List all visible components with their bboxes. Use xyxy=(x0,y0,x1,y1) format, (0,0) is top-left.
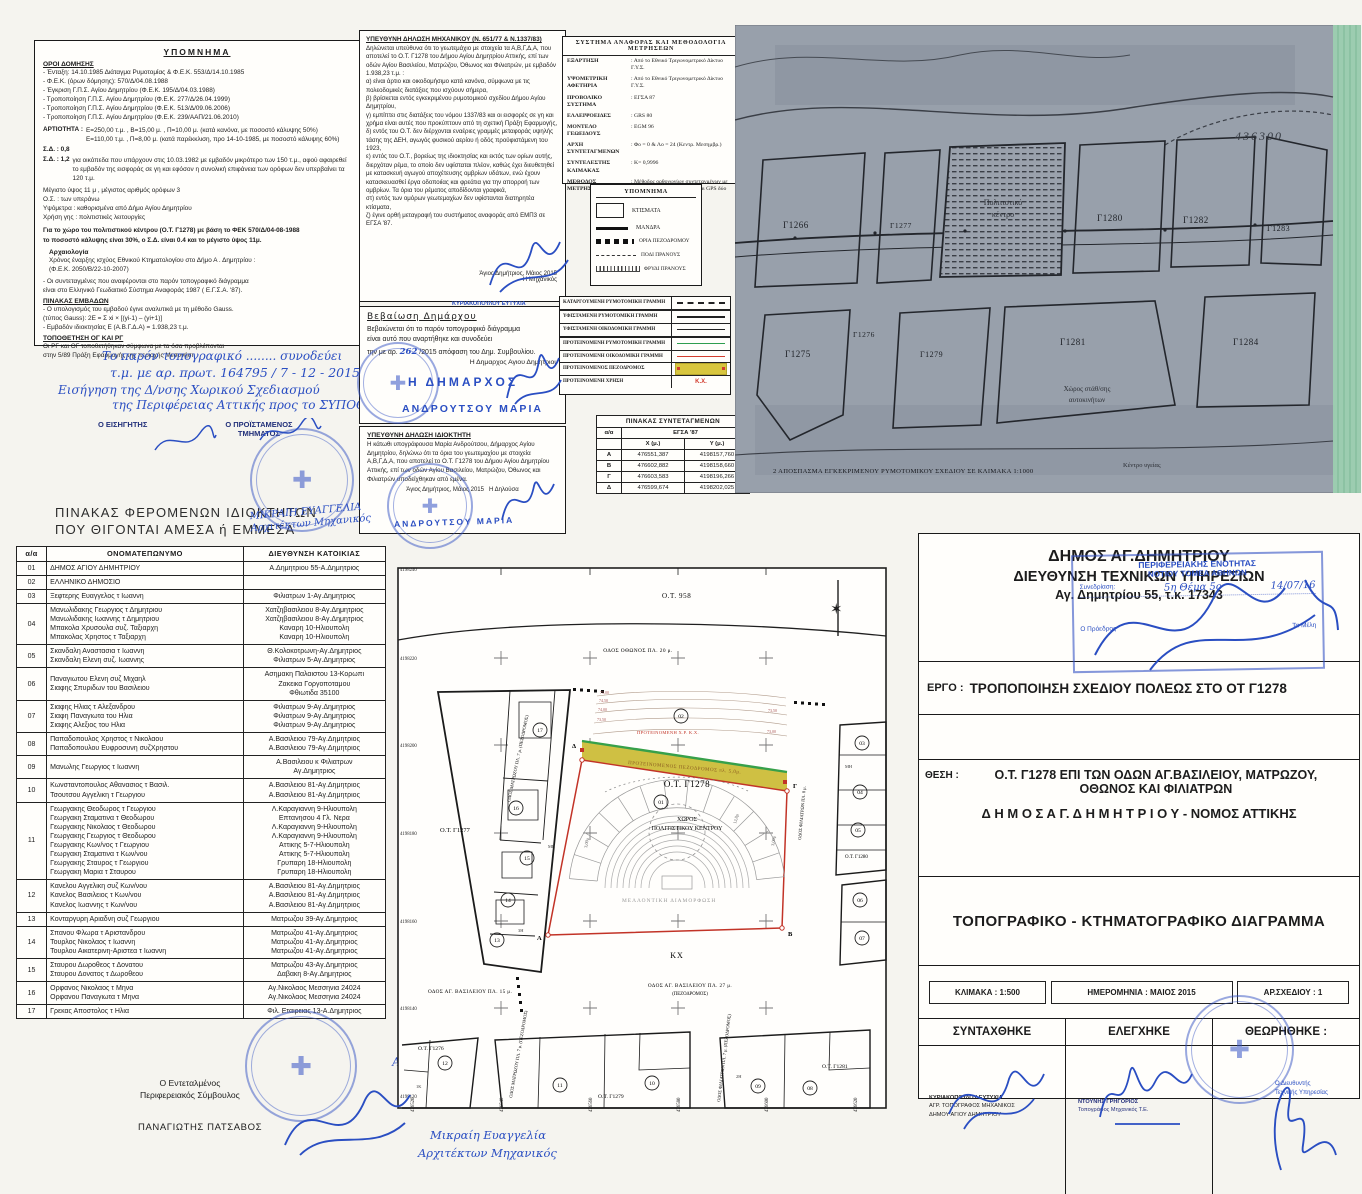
coords-x-value: 476602,882 xyxy=(622,461,685,472)
scale-box: ΚΛΙΜΑΚΑ : 1:500 xyxy=(929,981,1046,1004)
legend-title: ΥΠΟΜΝΗΜΑ xyxy=(596,188,696,198)
sd2-text: για οικόπεδα που υπάρχουν στις 10.03.198… xyxy=(73,156,351,183)
drafted-by-stamp: ΚΥΡΙΑΚΟΠΟΥΛΟΥ ΕΥΤΥΧΙΑ ΑΓΡ. ΤΟΠΟΓΡΑΦΟΣ ΜΗ… xyxy=(929,1094,1015,1119)
corner-gamma: Γ xyxy=(793,783,797,790)
archeology-title: Αρχαιολογία xyxy=(49,249,351,256)
owners-row: 07 Σιαφης Ηλιας τ Αλεξανδρου Σιαφη Παναγ… xyxy=(17,700,386,732)
thesi-value-1: Ο.Τ. Γ1278 ΕΠΙ ΤΩΝ ΟΔΩΝ ΑΓ.ΒΑΣΙΛΕΙΟΥ, ΜΑ… xyxy=(994,768,1317,782)
legend-row-existing-build: ΥΦΙΣΤΑΜΕΝΗ ΟΙΚΟΔΟΜΙΚΗ ΓΡΑΜΜΗ xyxy=(560,324,730,338)
owner-row-addresses: Α.Δημητριου 55-Α.Δημητριος xyxy=(243,561,385,575)
mayor-body-3b: /2015 απόφαση του Δημ. Συμβουλίου. xyxy=(419,349,535,356)
building-terms-box: ΥΠΟΜΝΗΜΑ ΟΡΟΙ ΔΟΜΗΣΗΣ - Ένταξη: 14.10.19… xyxy=(34,40,360,346)
storey-label-1k: 1Κ xyxy=(416,1084,422,1089)
map-grid-number: 436300 xyxy=(1235,129,1283,143)
owner-signer-label: Η Δηλούσα xyxy=(489,487,519,493)
legend-row-proposed-align: ΠΡΟΤΕΙΝΟΜΕΝΗ ΡΥΜΟΤΟΜΙΚΗ ΓΡΑΜΜΗ xyxy=(560,338,730,351)
owners-row: 01 ΔΗΜΟΣ ΑΓΙΟΥ ΔΗΜΗΤΡΙΟΥ Α.Δημητριου 55-… xyxy=(17,561,386,575)
map-label-g1281: Γ1281 xyxy=(1060,337,1086,347)
map-cultural-label-1: Πολιτιστικό xyxy=(984,198,1023,207)
owner-row-id: 09 xyxy=(17,756,47,779)
owner-row-names: Σταυρου Δωροθεος τ Δονατου Σταυρου Δονατ… xyxy=(47,959,244,982)
coords-col-id: α/α xyxy=(597,428,622,439)
legend-item-pedestrian-bounds: ΟΡΙΑ ΠΕΖΟΔΡΟΜΟΥ xyxy=(596,238,696,244)
owner-row-id: 13 xyxy=(17,912,47,926)
scanned-topographic-document: { "terms": { "title": "ΥΠΟΜΝΗΜΑ", "headi… xyxy=(0,0,1362,1177)
date-box: ΗΜΕΡΟΜΗΝΙΑ : ΜΑΙΟΣ 2015 xyxy=(1051,981,1233,1004)
owner-row-names: Ξεφτερης Ευαγγελος τ Ιωαννη xyxy=(47,589,244,603)
owner-row-addresses: Φιλιατρων 1-Αγ.Δημητριος xyxy=(243,589,385,603)
drafted-by-name: ΚΥΡΙΑΚΟΠΟΥΛΟΥ ΕΥΤΥΧΙΑ xyxy=(929,1094,1015,1102)
owners-col-id: α/α xyxy=(17,547,47,562)
owner-row-addresses: Λ.Καραγιαννη 9-Ηλιουπολη Επτανησου 4 Γλ.… xyxy=(243,802,385,880)
sd2-row: Σ.Δ. : 1,2 για οικόπεδα που υπάρχουν στι… xyxy=(43,156,351,183)
drafted-by-role1: ΑΓΡ. ΤΟΠΟΓΡΑΦΟΣ ΜΗΧΑΝΙΚΟΣ xyxy=(929,1102,1015,1110)
delegate-title: Ο Εντεταλμένος Περιφερειακός Σύμβουλος xyxy=(140,1078,240,1101)
height-rules: Μέγιστο ύψος 11 μ , μέγιστος αριθμός ορό… xyxy=(43,186,351,222)
owner-row-names: Σιαφης Ηλιας τ Αλεξανδρου Σιαφη Παναγιωτ… xyxy=(47,700,244,732)
session-label: Συνεδρίαση: xyxy=(1079,583,1115,595)
coords-row: Γ 476603,583 4198196,266 xyxy=(597,472,750,483)
map-label-g1283: Γ1283 xyxy=(1267,224,1290,233)
reference-system-table: ΣΥΣΤΗΜΑ ΑΝΑΦΟΡΑΣ ΚΑΙ ΜΕΘΟΔΟΛΟΓΙΑ ΜΕΤΡΗΣΕ… xyxy=(562,36,740,184)
coords-x-value: 476599,674 xyxy=(622,483,685,494)
titleblock-spacer-row xyxy=(919,715,1359,760)
coords-title: ΠΙΝΑΚΑΣ ΣΥΝΤΕΤΑΓΜΕΝΩΝ xyxy=(597,416,750,428)
session-date-handwriting: 14/07/16 xyxy=(1271,580,1316,592)
owner-row-names: ΔΗΜΟΣ ΑΓΙΟΥ ΔΗΜΗΤΡΙΟΥ xyxy=(47,561,244,575)
y-label-180: 4198180 xyxy=(400,832,417,837)
owner-row-id: 12 xyxy=(17,880,47,912)
og-title: ΤΟΠΟΘΕΤΗΣΗ ΟΓ ΚΑΙ ΡΓ xyxy=(43,335,351,342)
map-label-g1277: Γ1277 xyxy=(890,221,912,230)
refsys-row: ΕΛΛΕΙΨΟΕΙΔΕΣ : GRS 80 xyxy=(563,111,739,122)
map-health-center-label: Κέντρο υγείας xyxy=(1123,462,1161,469)
storey-label-mi-1: ΜΗ xyxy=(548,844,556,849)
engineer-decl-date: Άγιος Δημήτριος, Μάιος 2015 Η Μηχανικός xyxy=(479,271,557,283)
legend-row-abolished: ΚΑΤΑΡΓΟΥΜΕΝΗ ΡΥΜΟΤΟΜΙΚΗ ΓΡΑΜΜΗ xyxy=(560,297,730,311)
circled-04: 04 xyxy=(857,790,863,796)
thesi-line: ΘΕΣΗ : Ο.Τ. Γ1278 ΕΠΙ ΤΩΝ ΟΔΩΝ ΑΓ.ΒΑΣΙΛΕ… xyxy=(925,768,1353,796)
owner-row-id: 10 xyxy=(17,779,47,802)
committee-signers-row: Ο Πρόεδρος Τα Μέλη xyxy=(1080,622,1316,633)
refsys-row: ΕΞΑΡΤΗΣΗ : Από το Εθνικό Τριγωνομετρικό … xyxy=(563,56,739,74)
y-label-140: 4198140 xyxy=(400,1007,417,1012)
circled-14: 14 xyxy=(505,898,511,904)
owner-row-addresses: Φιλιατρων 9-Αγ.Δημητριος Φιλιατρων 9-Αγ.… xyxy=(243,700,385,732)
legend-label-ktismata: ΚΤΙΣΜΑΤΑ xyxy=(632,208,661,214)
x-label-620: 476620 xyxy=(854,1097,859,1112)
ergo-label: ΕΡΓΟ : xyxy=(927,682,964,694)
refsys-row: ΜΟΝΤΕΛΟ ΓΕΩΕΙΔΟΥΣ : EGM 96 xyxy=(563,122,739,140)
circled-12: 12 xyxy=(442,1061,448,1067)
owners-row: 13 Κονταργυρη Αριαδνη συζ Γεωργιου Ματρω… xyxy=(17,912,386,926)
circled-07: 07 xyxy=(859,936,865,942)
circled-05: 05 xyxy=(855,828,861,834)
handwritten-notes: Το παρόν τοπογραφικό ........ συνοδεύει … xyxy=(50,349,380,438)
owner-row-addresses: Α.Βασιλειου 79-Αγ.Δημητριος Α.Βασιλειου … xyxy=(243,733,385,756)
existing-alignment-symbol xyxy=(672,316,730,318)
titleblock-meta-row: ΚΛΙΜΑΚΑ : 1:500 ΗΜΕΡΟΜΗΝΙΑ : ΜΑΙΟΣ 2015 … xyxy=(919,966,1359,1019)
coordinates-table-wrap: ΠΙΝΑΚΑΣ ΣΥΝΤΕΤΑΓΜΕΝΩΝ α/α ΕΓΣΑ '87 X (μ.… xyxy=(596,415,750,494)
x-label-540: 476540 xyxy=(500,1097,505,1112)
circled-01: 01 xyxy=(658,800,664,806)
delegate-line2: Περιφερειακός Σύμβουλος xyxy=(140,1090,240,1102)
proposed-pedestrian-label: ΠΡΟΤΕΙΝΟΜΕΝΟΣ ΠΕΖΟΔΡΟΜΟΣ xyxy=(560,363,672,375)
owner-row-id: 07 xyxy=(17,700,47,732)
session-handwriting: 5η Θέμα 5ο xyxy=(1164,582,1222,594)
head-label-line1: Ο ΠΡΟΪΣΤΑΜΕΝΟΣ xyxy=(225,420,292,429)
owner-row-addresses xyxy=(243,575,385,589)
approval-round-stamp: ✚ xyxy=(1185,995,1294,1104)
legend-label-mandra: ΜΑΝΔΡΑ xyxy=(636,225,660,231)
coords-row: Δ 476599,674 4198202,025 xyxy=(597,483,750,494)
sd2-label: Σ.Δ. : 1,2 xyxy=(43,156,70,183)
owner-row-id: 08 xyxy=(17,733,47,756)
owner-row-addresses: Ασημακη Παλαιστου 13-Κορωπι Ζακεικα Γοργ… xyxy=(243,668,385,700)
owner-row-id: 15 xyxy=(17,959,47,982)
refsys-row: ΑΡΧΗ ΣΥΝΤΕΤΑΓΜΕΝΩΝ : Φο = 0 & Λο = 24 (Κ… xyxy=(563,140,739,158)
owner-row-names: ΕΛΛΗΝΙΚΟ ΔΗΜΟΣΙΟ xyxy=(47,575,244,589)
owners-row: 12 Κανελου Αγγελικη συζ Κων/νου Κανελος … xyxy=(17,880,386,912)
certified-copy-name: Μικραίη Ευαγγελία xyxy=(430,1128,546,1142)
delegate-line1: Ο Εντεταλμένος xyxy=(140,1078,240,1090)
refsys-title: ΣΥΣΤΗΜΑ ΑΝΑΦΟΡΑΣ ΚΑΙ ΜΕΘΟΔΟΛΟΓΙΑ ΜΕΤΡΗΣΕ… xyxy=(563,37,739,56)
corner-alpha: Α xyxy=(537,935,542,942)
proposed-use-annotation: ΠΡΟΤΕΙΝΟΜΕΝΗ Χ.Ρ. Κ.Χ. xyxy=(637,730,699,735)
plan-g1276-label: Ο.Τ. Γ1276 xyxy=(418,1046,444,1052)
refsys-row: ΠΡΟΒΟΛΙΚΟ ΣΥΣΤΗΜΑ : ΕΓΣΑ 87 xyxy=(563,93,739,111)
owner-row-addresses: Ματρωζου 39-Αγ.Δημητριος xyxy=(243,912,385,926)
owners-row: 16 Ορφανος Νικολαος τ Μηνα Ορφανου Παναγ… xyxy=(17,982,386,1005)
refsys-label: ΥΨΟΜΕΤΡΙΚΗ ΑΦΕΤΗΡΙΑ xyxy=(567,76,631,90)
circled-11: 11 xyxy=(557,1083,563,1089)
drafted-by-cell: ΚΥΡΙΑΚΟΠΟΥΛΟΥ ΕΥΤΥΧΙΑ ΑΓΡ. ΤΟΠΟΓΡΑΦΟΣ ΜΗ… xyxy=(919,1046,1066,1194)
owner-row-addresses: Χατζηβασιλειου 8-Αγ.Δημητριος Χατζηβασιλ… xyxy=(243,603,385,644)
coords-x-value: 476551,387 xyxy=(622,450,685,461)
certified-copy-role: Αρχιτέκτων Μηχανικός xyxy=(418,1146,557,1160)
legend-item-wall: ΜΑΝΔΡΑ xyxy=(596,225,696,231)
approved-by-stamp-text: Ο Διευθυντής Τεχνικής Υπηρεσίας xyxy=(1275,1080,1328,1098)
terms-title: ΥΠΟΜΝΗΜΑ xyxy=(43,47,351,57)
titleblock-doctitle-row: ΤΟΠΟΓΡΑΦΙΚΟ - ΚΤΗΜΑΤΟΓΡΑΦΙΚΟ ΔΙΑΓΡΑΜΜΑ xyxy=(919,877,1359,966)
egsa-note: - Οι συντεταγμένες που αναφέρονται στο π… xyxy=(43,277,351,295)
owner-row-addresses: Ματρωζου 41-Αγ.Δημητριος Ματρωζου 41-Αγ.… xyxy=(243,926,385,958)
proposed-pedestrian-symbol xyxy=(672,363,730,375)
owner-row-names: Γρεκας Αποστολος τ Ηλια xyxy=(47,1005,244,1019)
legend-label-podi: ΠΟΔΙ ΠΡΑΝΟΥΣ xyxy=(641,252,680,258)
circled-13: 13 xyxy=(494,938,500,944)
proposed-alignment-symbol xyxy=(672,343,730,344)
refsys-label: ΠΡΟΒΟΛΙΚΟ ΣΥΣΤΗΜΑ xyxy=(567,95,631,109)
vasileiou-27-label: ΟΔΟΣ ΑΓ. ΒΑΣΙΛΕΙΟΥ ΠΛ. 27 μ. xyxy=(648,983,732,989)
municipality-prefecture: Δ Η Μ Ο Σ Α Γ. Δ Η Μ Η Τ Ρ Ι Ο Υ - ΝΟΜΟΣ… xyxy=(925,806,1353,821)
engineer-decl-body: Δηλώνεται υπεύθυνα ότι το γεωτεμάχιο με … xyxy=(366,45,559,229)
refsys-value: : EGM 96 xyxy=(631,124,735,138)
owner-row-names: Γεωργακης Θεοδωρος τ Γεωργιου Γεωργακη Σ… xyxy=(47,802,244,880)
legend-item-buildings: ΚΤΙΣΜΑΤΑ xyxy=(596,203,696,218)
map-label-g1266: Γ1266 xyxy=(783,220,809,230)
plan-othonos-street-label: ΟΔΟΣ ΟΘΩΝΟΣ ΠΛ. 20 μ. xyxy=(603,648,672,654)
owners-col-name: ΟΝΟΜΑΤΕΠΩΝΥΜΟ xyxy=(47,547,244,562)
coords-point-id: Γ xyxy=(597,472,622,483)
owner-row-id: 04 xyxy=(17,603,47,644)
approved-plan-excerpt-map: Γ1266 Γ1277 Γ1280 Γ1282 Γ1283 Γ1275 Γ127… xyxy=(735,25,1361,493)
ergo-value: ΤΡΟΠΟΠΟΙΗΣΗ ΣΧΕΔΙΟΥ ΠΟΛΕΩΣ ΣΤΟ ΟΤ Γ1278 xyxy=(970,681,1287,696)
corner-delta: Δ xyxy=(572,743,576,750)
regional-authority-stamp: ✚ xyxy=(250,428,354,532)
owner-row-names: Παπαδοπουλος Χρηστος τ Νικολαου Παπαδοπο… xyxy=(47,733,244,756)
site-plan: Ο.Τ. 958 ✶ ΟΔΟΣ ΟΘΩΝΟΣ ΠΛ. 20 μ. Ο.Τ. Γ1… xyxy=(390,540,890,1115)
plan-g1278-label: Ο.Τ. Γ1278 xyxy=(664,779,710,789)
legend-label-oria: ΟΡΙΑ ΠΕΖΟΔΡΟΜΟΥ xyxy=(639,238,690,244)
mayor-cert-title: Βεβαίωση Δημάρχου xyxy=(367,312,558,322)
members-label: Τα Μέλη xyxy=(1292,622,1316,629)
owner-row-names: Παναγιωτου Ελενη συζ Μιχαηλ Σιαφης Σπυρι… xyxy=(47,668,244,700)
owners-row: 14 Σπανου Φλωρα τ Αριστανδρου Τουρλος Νι… xyxy=(17,926,386,958)
owner-row-names: Κονταργυρη Αριαδνη συζ Γεωργιου xyxy=(47,912,244,926)
engineer-signer-label: Η Μηχανικός xyxy=(523,277,557,283)
map-parking-label-2: αυτοκινήτων xyxy=(1069,396,1105,404)
refsys-rows: ΕΞΑΡΤΗΣΗ : Από το Εθνικό Τριγωνομετρικό … xyxy=(563,56,739,202)
owner-row-addresses: Α.Βασιλειου 81-Αγ.Δημητριος Α.Βασιλειου … xyxy=(243,779,385,802)
circled-02: 02 xyxy=(678,714,684,720)
owners-row: 03 Ξεφτερης Ευαγγελος τ Ιωαννη Φιλιατρων… xyxy=(17,589,386,603)
line-types-legend: ΚΑΤΑΡΓΟΥΜΕΝΗ ΡΥΜΟΤΟΜΙΚΗ ΓΡΑΜΜΗ ΥΦΙΣΤΑΜΕΝ… xyxy=(559,296,731,395)
storey-label-3i: 3Η xyxy=(518,928,524,933)
owner-row-addresses: Αγ.Νικολαος Μεσσηνια 24024 Αγ.Νικολαος Μ… xyxy=(243,982,385,1005)
map-cultural-label-2: κέντρο xyxy=(992,210,1014,219)
building-symbol xyxy=(596,203,624,218)
coords-row: Α 476551,387 4198157,760 xyxy=(597,450,750,461)
checked-by-stamp: ΝΤΟΥΝΗΣ ΓΡΗΓΟΡΙΟΣ Τοπογράφος Μηχανικός Τ… xyxy=(1078,1098,1148,1115)
handnote-line4: της Περιφέρειας Αττικής προς το ΣΥΠΟΘΑ xyxy=(112,398,380,412)
checked-by-name: ΝΤΟΥΝΗΣ ΓΡΗΓΟΡΙΟΣ xyxy=(1078,1098,1148,1106)
owner-row-id: 11 xyxy=(17,802,47,880)
slope-brow-symbol xyxy=(596,266,640,272)
wall-symbol xyxy=(596,227,628,230)
x-label-580: 476580 xyxy=(677,1097,682,1112)
abolished-alignment-symbol xyxy=(672,302,730,304)
map-caption: 2 ΑΠΟΣΠΑΣΜΑ ΕΓΚΕΚΡΙΜΕΝΟΥ ΡΥΜΟΤΟΜΙΚΟΥ ΣΧΕ… xyxy=(773,468,1034,475)
owner-row-id: 02 xyxy=(17,575,47,589)
plan-g1277-label: Ο.Τ. Γ1277 xyxy=(440,827,471,834)
refsys-row: ΥΨΟΜΕΤΡΙΚΗ ΑΦΕΤΗΡΙΑ : Από το Εθνικό Τριγ… xyxy=(563,74,739,92)
titleblock-thesi-row: ΘΕΣΗ : Ο.Τ. Γ1278 ΕΠΙ ΤΩΝ ΟΔΩΝ ΑΓ.ΒΑΣΙΛΕ… xyxy=(919,760,1359,877)
owners-row: 15 Σταυρου Δωροθεος τ Δονατου Σταυρου Δο… xyxy=(17,959,386,982)
coords-empty-cell xyxy=(597,439,622,450)
circled-06: 06 xyxy=(857,898,863,904)
areas-text: - Ο υπολογισμός του εμβαδού έγινε αναλυτ… xyxy=(43,305,351,332)
legend-item-slope-brow: ΦΡΥΔΙ ΠΡΑΝΟΥΣ xyxy=(596,266,696,272)
owner-row-id: 14 xyxy=(17,926,47,958)
thesi-label: ΘΕΣΗ : xyxy=(925,770,959,796)
owner-row-addresses: Θ.Κολοκοτρωνη-Αγ.Δημητριος Φιλιατρων 5-Α… xyxy=(243,645,385,668)
municipality-emblem-stamp: ✚ xyxy=(357,342,439,424)
delegate-name: ΠΑΝΑΓΙΩΤΗΣ ΠΑΤΣΑΒΟΣ xyxy=(138,1122,262,1133)
owner-row-names: Μανωλης Γεωργιος τ Ιωαννη xyxy=(47,756,244,779)
refsys-value: : Φο = 0 & Λο = 24 (Κεντρ. Μεσημβρ.) xyxy=(631,142,735,156)
coords-col-x: X (μ.) xyxy=(622,439,685,450)
committee-stamp-box: ΠΕΡΙΦΕΡΕΙΑΚΗΣ ΕΝΟΤΗΤΑΣ ΝΟΤΙΟΥ ΤΟΜΕΑ ΑΘΗΝ… xyxy=(1071,551,1325,673)
x-label-560: 476560 xyxy=(589,1097,594,1112)
owners-row: 09 Μανωλης Γεωργιος τ Ιωαννη Α.Βασιλειου… xyxy=(17,756,386,779)
president-label: Ο Πρόεδρος xyxy=(1080,625,1116,633)
map-label-g1280: Γ1280 xyxy=(1097,213,1123,223)
sd1: Σ.Δ. : 0,8 xyxy=(43,146,351,153)
circled-16: 16 xyxy=(513,806,519,812)
thesi-value: Ο.Τ. Γ1278 ΕΠΙ ΤΩΝ ΟΔΩΝ ΑΓ.ΒΑΣΙΛΕΙΟΥ, ΜΑ… xyxy=(959,768,1353,796)
legend-row-proposed-pedestrian: ΠΡΟΤΕΙΝΟΜΕΝΟΣ ΠΕΖΟΔΡΟΜΟΣ xyxy=(560,363,730,376)
owner-row-id: 03 xyxy=(17,589,47,603)
coords-point-id: Δ xyxy=(597,483,622,494)
refsys-label: ΕΛΛΕΙΨΟΕΙΔΕΣ xyxy=(567,113,631,120)
proposed-use-label: ΠΡΟΤΕΙΝΟΜΕΝΗ ΧΡΗΣΗ xyxy=(560,376,672,388)
owners-row: 10 Κωνσταντοπουλος Αθανασιος τ Βασιλ. Τσ… xyxy=(17,779,386,802)
refsys-value: : Από το Εθνικό Τριγωνομετρικό Δίκτυο Γ.… xyxy=(631,76,735,90)
terms-heading: ΟΡΟΙ ΔΟΜΗΣΗΣ xyxy=(43,61,351,68)
document-title: ΤΟΠΟΓΡΑΦΙΚΟ - ΚΤΗΜΑΤΟΓΡΑΦΙΚΟ ΔΙΑΓΡΑΜΜΑ xyxy=(953,913,1325,930)
checked-by-role: Τοπογράφος Μηχανικός Τ.Ε. xyxy=(1078,1106,1148,1114)
coords-x-value: 476603,583 xyxy=(622,472,685,483)
artiotita-label: ΑΡΤΙΟΤΗΤΑ : xyxy=(43,126,83,144)
owner-row-id: 01 xyxy=(17,561,47,575)
proposed-building-line-label: ΠΡΟΤΕΙΝΟΜΕΝΗ ΟΙΚΟΔΟΜΙΚΗ ΓΡΑΜΜΗ xyxy=(560,351,672,363)
artiotita-row: ΑΡΤΙΟΤΗΤΑ : Ε=250,00 τ.μ. , Β=15,00 μ. ,… xyxy=(43,126,351,144)
map-label-g1276: Γ1276 xyxy=(853,330,875,339)
committee-session-row: Συνεδρίαση: 5η Θέμα 5ο 14/07/16 xyxy=(1079,580,1315,598)
storey-label-mi-2: ΜΗ xyxy=(845,764,853,769)
y-label-220: 4198220 xyxy=(400,657,417,662)
mayor-body-2: είναι αυτό που αναρτήθηκε και συνοδεύει xyxy=(367,336,492,343)
owner-row-names: Ορφανος Νικολαος τ Μηνα Ορφανου Παναγιωτ… xyxy=(47,982,244,1005)
coordinates-table: ΠΙΝΑΚΑΣ ΣΥΝΤΕΤΑΓΜΕΝΩΝ α/α ΕΓΣΑ '87 X (μ.… xyxy=(596,415,750,494)
map-parking-label-1: Χώρος στάθ/σης xyxy=(1064,385,1111,393)
coords-row: Β 476602,882 4198158,660 xyxy=(597,461,750,472)
slope-foot-symbol xyxy=(596,255,636,256)
plan-kx-label: ΚΧ xyxy=(670,951,684,960)
circled-10: 10 xyxy=(649,1081,655,1087)
abolished-alignment-label: ΚΑΤΑΡΓΟΥΜΕΝΗ ΡΥΜΟΤΟΜΙΚΗ ΓΡΑΜΜΗ xyxy=(560,297,672,309)
owner-row-id: 17 xyxy=(17,1005,47,1019)
legend-row-proposed-build: ΠΡΟΤΕΙΝΟΜΕΝΗ ΟΙΚΟΔΟΜΙΚΗ ΓΡΑΜΜΗ xyxy=(560,351,730,364)
legend-item-slope-foot: ΠΟΔΙ ΠΡΑΝΟΥΣ xyxy=(596,252,696,258)
owner-row-addresses: Ματρωζου 43-Αγ.Δημητριος Δαβακη 8-Αγ.Δημ… xyxy=(243,959,385,982)
refsys-label: ΑΡΧΗ ΣΥΝΤΕΤΑΓΜΕΝΩΝ xyxy=(567,142,631,156)
legend-row-existing-align: ΥΦΙΣΤΑΜΕΝΗ ΡΥΜΟΤΟΜΙΚΗ ΓΡΑΜΜΗ xyxy=(560,311,730,324)
refsys-value: : Κ= 0,9996 xyxy=(631,160,735,174)
owner-row-id: 06 xyxy=(17,668,47,700)
refsys-row: ΣΥΝΤΕΛΕΣΤΗΣ ΚΛΙΜΑΚΑΣ : Κ= 0,9996 xyxy=(563,158,739,176)
owner-row-names: Κανελου Αγγελικη συζ Κων/νου Κανελος Βασ… xyxy=(47,880,244,912)
engineer-decl-title: ΥΠΕΥΘΥΝΗ ΔΗΛΩΣΗ ΜΗΧΑΝΙΚΟΥ (Ν. 651/77 & Ν… xyxy=(366,36,559,43)
plan-ot958-label: Ο.Τ. 958 xyxy=(662,592,691,600)
plan-xoros-label: ΧΩΡΟΣ xyxy=(677,817,697,823)
mayor-declaration-stamp: ✚ xyxy=(387,463,473,549)
artiotita-text: Ε=250,00 τ.μ. , Β=15,00 μ. , Π=10,00 μ. … xyxy=(86,126,339,144)
owners-table-wrap: α/α ΟΝΟΜΑΤΕΠΩΝΥΜΟ ΔΙΕΥΘΥΝΣΗ ΚΑΤΟΙΚΙΑΣ 01… xyxy=(16,546,386,1019)
refsys-value: : Από το Εθνικό Τριγωνομετρικό Δίκτυο Γ.… xyxy=(631,58,735,72)
owners-col-address: ΔΙΕΥΘΥΝΣΗ ΚΑΤΟΙΚΙΑΣ xyxy=(243,547,385,562)
owner-row-addresses: Α.Βασιλειου κ Φιλιατρων Αγ.Δημητριος xyxy=(243,756,385,779)
owner-row-names: Κωνσταντοπουλος Αθανασιος τ Βασιλ. Τσουτ… xyxy=(47,779,244,802)
proposed-alignment-label: ΠΡΟΤΕΙΝΟΜΕΝΗ ΡΥΜΟΤΟΜΙΚΗ ΓΡΑΜΜΗ xyxy=(560,338,672,350)
rapporteur-label: Ο ΕΙΣΗΓΗΤΗΣ xyxy=(98,420,147,438)
signature-body-row: ΚΥΡΙΑΚΟΠΟΥΛΟΥ ΕΥΤΥΧΙΑ ΑΓΡ. ΤΟΠΟΓΡΑΦΟΣ ΜΗ… xyxy=(919,1046,1359,1194)
pedestrian-bounds-symbol xyxy=(596,239,634,244)
corner-beta: Β xyxy=(788,931,793,938)
legend-row-proposed-use: ΠΡΟΤΕΙΝΟΜΕΝΗ ΧΡΗΣΗ Κ.Χ. xyxy=(560,376,730,388)
owner-row-addresses: Α.Βασιλειου 81-Αγ.Δημητριος Α.Βασιλειου … xyxy=(243,880,385,912)
owner-row-names: Σκανδαλη Αναστασια τ Ιωαννη Σκανδαλη Ελε… xyxy=(47,645,244,668)
archeology-text: Χρόνος έναρξης ισχύος Εθνικού Κτηματολογ… xyxy=(49,256,351,274)
owners-row: 05 Σκανδαλη Αναστασια τ Ιωαννη Σκανδαλη … xyxy=(17,645,386,668)
drafted-by-role2: ΔΗΜΟΥ ΑΓΙΟΥ ΔΗΜΗΤΡΙΟΥ xyxy=(929,1111,1015,1119)
site-plan-svg: Ο.Τ. 958 ✶ ΟΔΟΣ ΟΘΩΝΟΣ ΠΛ. 20 μ. Ο.Τ. Γ1… xyxy=(390,540,890,1115)
vasileiou-27-pedestrian: (ΠΕΖΟΔΡΟΜΟΣ) xyxy=(672,992,708,997)
storey-label-2i: 2Η xyxy=(736,1074,742,1079)
refsys-value: : ΕΓΣΑ 87 xyxy=(631,95,735,109)
coords-point-id: Β xyxy=(597,461,622,472)
x-label-520: 476520 xyxy=(411,1097,416,1112)
handnote-line3: Εισήγηση της Δ/νσης Χωρικού Σχεδιασμού xyxy=(58,383,380,397)
refsys-label: ΕΞΑΡΤΗΣΗ xyxy=(567,58,631,72)
plan-g1279-label: Ο.Τ. Γ1279 xyxy=(598,1094,624,1100)
owners-row: 06 Παναγιωτου Ελενη συζ Μιχαηλ Σιαφης Σπ… xyxy=(17,668,386,700)
owners-row: 11 Γεωργακης Θεοδωρος τ Γεωργιου Γεωργακ… xyxy=(17,802,386,880)
proposed-building-line-symbol xyxy=(672,356,730,357)
owner-row-id: 16 xyxy=(17,982,47,1005)
owners-header-row: α/α ΟΝΟΜΑΤΕΠΩΝΥΜΟ ΔΙΕΥΘΥΝΣΗ ΚΑΤΟΙΚΙΑΣ xyxy=(17,547,386,562)
existing-building-line-label: ΥΦΙΣΤΑΜΕΝΗ ΟΙΚΟΔΟΜΙΚΗ ΓΡΑΜΜΗ xyxy=(560,324,672,336)
owner-row-id: 05 xyxy=(17,645,47,668)
handnote-signers: Ο ΕΙΣΗΓΗΤΗΣ Ο ΠΡΟΪΣΤΑΜΕΝΟΣ ΤΜΗΜΑΤΟΣ xyxy=(50,420,380,438)
existing-building-line-symbol xyxy=(672,329,730,330)
refsys-label: ΣΥΝΤΕΛΕΣΤΗΣ ΚΛΙΜΑΚΑΣ xyxy=(567,160,631,174)
approved-role2: Τεχνικής Υπηρεσίας xyxy=(1275,1089,1328,1098)
plan-g1281-label: Ο.Τ. Γ1281 xyxy=(822,1064,848,1070)
map-label-g1275: Γ1275 xyxy=(785,349,811,359)
coords-point-id: Α xyxy=(597,450,622,461)
refsys-value: : GRS 80 xyxy=(631,113,735,120)
owner-row-names: Μανωλιδακης Γεωργιος τ Δημητριου Μανωλιδ… xyxy=(47,603,244,644)
certified-copy-stamp: ✚ xyxy=(245,1010,357,1122)
handnote-line1: Το παρόν τοπογραφικό ........ συνοδεύει xyxy=(102,349,380,363)
x-label-600: 476600 xyxy=(765,1097,770,1112)
owners-table: α/α ΟΝΟΜΑΤΕΠΩΝΥΜΟ ΔΙΕΥΘΥΝΣΗ ΚΑΤΟΙΚΙΑΣ 01… xyxy=(16,546,386,1019)
cultural-note: Για το χώρο του πολιτιστικού κέντρου (Ο.… xyxy=(43,226,351,244)
vasileiou-15-label: ΟΔΟΣ ΑΓ. ΒΑΣΙΛΕΙΟΥ ΠΛ. 15 μ. xyxy=(428,989,512,995)
circled-03: 03 xyxy=(859,741,865,747)
circled-17: 17 xyxy=(537,728,543,734)
existing-alignment-label: ΥΦΙΣΤΑΜΕΝΗ ΡΥΜΟΤΟΜΙΚΗ ΓΡΑΜΜΗ xyxy=(560,311,672,323)
map-label-g1284: Γ1284 xyxy=(1233,337,1259,347)
owner-decl-title: ΥΠΕΥΘΥΝΗ ΔΗΛΩΣΗ ΙΔΙΟΚΤΗΤΗ xyxy=(367,432,558,439)
plan-cultural-center-label: ΠΟΛΙΤΙΣΤΙΚΟΥ ΚΕΝΤΡΟΥ xyxy=(652,826,723,832)
circled-08: 08 xyxy=(807,1086,813,1092)
owner-row-names: Σπανου Φλωρα τ Αριστανδρου Τουρλος Νικολ… xyxy=(47,926,244,958)
terms-entries: - Ένταξη: 14.10.1985 Διάταγμα Ρυμοτομίας… xyxy=(43,68,351,123)
areas-title: ΠΙΝΑΚΑΣ ΕΜΒΑΔΩΝ xyxy=(43,298,351,305)
map-label-g1279: Γ1279 xyxy=(920,350,943,359)
engineer-declaration-box: ΥΠΕΥΘΥΝΗ ΔΗΛΩΣΗ ΜΗΧΑΝΙΚΟΥ (Ν. 651/77 & Ν… xyxy=(359,30,566,302)
y-label-240: 4198240 xyxy=(400,568,417,573)
checked-signature xyxy=(1080,1052,1200,1132)
circled-09: 09 xyxy=(755,1084,761,1090)
thesi-value-2: ΟΘΩΝΟΣ ΚΑΙ ΦΙΛΙΑΤΡΩΝ xyxy=(1080,782,1233,796)
coords-system: ΕΓΣΑ '87 xyxy=(622,428,750,439)
owners-row: 02 ΕΛΛΗΝΙΚΟ ΔΗΜΟΣΙΟ xyxy=(17,575,386,589)
plan-g1280-label: Ο.Τ. Γ1280 xyxy=(845,855,868,860)
